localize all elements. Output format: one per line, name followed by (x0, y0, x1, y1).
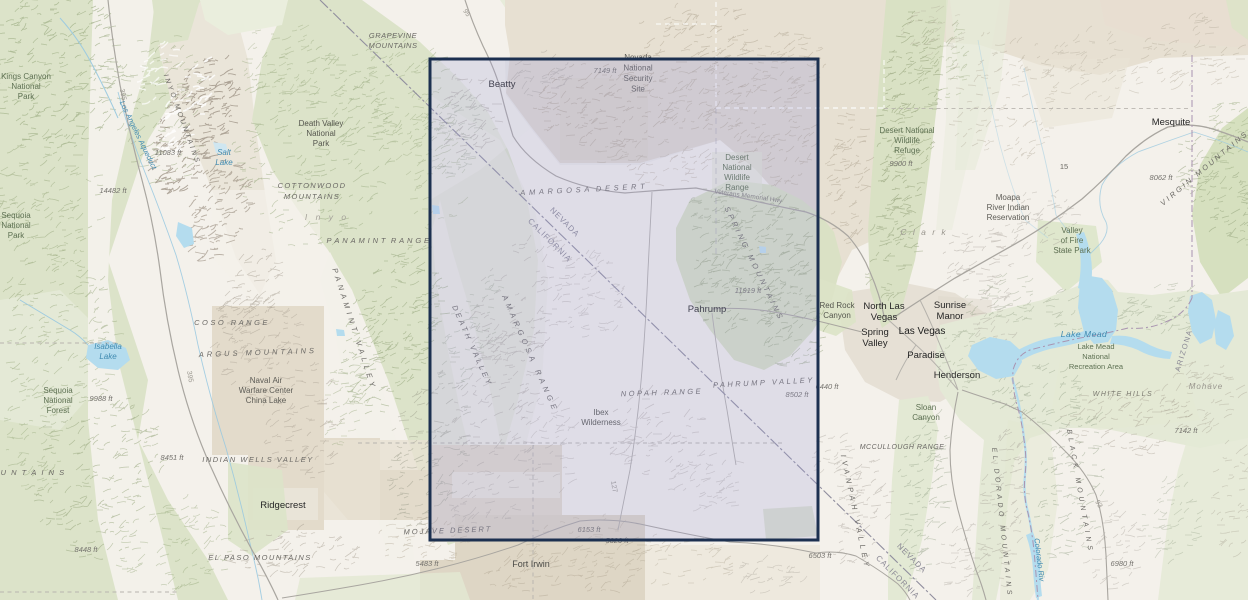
svg-text:Las Vegas: Las Vegas (899, 326, 946, 337)
svg-text:Park: Park (8, 231, 25, 240)
svg-text:Spring: Spring (861, 327, 888, 338)
svg-text:Henderson: Henderson (934, 370, 980, 381)
svg-text:Sequoia: Sequoia (1, 211, 31, 220)
svg-text:Vegas: Vegas (871, 312, 898, 323)
svg-text:P A N A M I N T R A N G E: P A N A M I N T R A N G E (327, 236, 431, 245)
svg-text:MOUNTAINS: MOUNTAINS (284, 192, 340, 201)
svg-text:Mesquite: Mesquite (1152, 117, 1191, 128)
svg-text:Refuge: Refuge (894, 146, 920, 155)
svg-text:WHITE HILLS: WHITE HILLS (1093, 391, 1153, 398)
svg-text:Salt: Salt (217, 148, 232, 157)
svg-text:9900 ft: 9900 ft (890, 159, 914, 168)
svg-text:of Fire: of Fire (1061, 236, 1084, 245)
svg-text:C l a r k: C l a r k (900, 227, 947, 237)
svg-text:Canyon: Canyon (823, 311, 851, 320)
svg-text:INDIAN WELLS VALLEY: INDIAN WELLS VALLEY (202, 455, 313, 464)
svg-text:Kings Canyon: Kings Canyon (1, 72, 51, 81)
svg-text:China Lake: China Lake (246, 396, 287, 405)
svg-text:National: National (1082, 352, 1110, 361)
svg-text:Mohave: Mohave (1189, 382, 1223, 391)
svg-text:National: National (306, 129, 336, 138)
svg-text:Red Rock: Red Rock (819, 301, 855, 310)
svg-text:Park: Park (18, 92, 35, 101)
svg-text:Desert National: Desert National (879, 126, 934, 135)
svg-text:Lake Mead: Lake Mead (1061, 329, 1108, 339)
svg-text:8451 ft: 8451 ft (161, 453, 185, 462)
svg-text:Wildlife: Wildlife (894, 136, 920, 145)
svg-text:Sunrise: Sunrise (934, 300, 966, 311)
svg-text:COSO RANGE: COSO RANGE (194, 318, 270, 327)
svg-text:5483 ft: 5483 ft (416, 559, 440, 568)
svg-text:Moapa: Moapa (996, 193, 1021, 202)
svg-text:Recreation Area: Recreation Area (1069, 362, 1124, 371)
svg-text:Forest: Forest (47, 406, 70, 415)
svg-text:8062 ft: 8062 ft (1150, 173, 1174, 182)
svg-text:Reservation: Reservation (987, 213, 1030, 222)
svg-text:6503 ft: 6503 ft (809, 551, 833, 560)
svg-text:Lake: Lake (215, 158, 233, 167)
svg-text:State Park: State Park (1053, 246, 1091, 255)
svg-text:8448 ft: 8448 ft (75, 545, 99, 554)
svg-text:Paradise: Paradise (907, 350, 945, 361)
svg-text:National: National (11, 82, 41, 91)
svg-text:GRAPEVINE: GRAPEVINE (369, 31, 418, 40)
svg-text:Lake: Lake (99, 352, 117, 361)
svg-text:EL PASO MOUNTAINS: EL PASO MOUNTAINS (208, 553, 312, 562)
svg-text:Sequoia: Sequoia (43, 386, 73, 395)
svg-text:Sloan: Sloan (916, 403, 936, 412)
svg-text:Manor: Manor (937, 311, 964, 322)
svg-text:Park: Park (313, 139, 330, 148)
svg-text:Canyon: Canyon (912, 413, 940, 422)
svg-text:MOUNTAINS: MOUNTAINS (369, 41, 418, 50)
svg-text:Valley: Valley (1061, 226, 1082, 235)
svg-text:Death Valley: Death Valley (299, 119, 344, 128)
svg-text:9988 ft: 9988 ft (90, 394, 114, 403)
svg-text:14482 ft: 14482 ft (99, 186, 127, 195)
svg-text:Fort Irwin: Fort Irwin (512, 559, 550, 569)
svg-text:M O U N T A I N S: M O U N T A I N S (0, 468, 66, 477)
svg-text:North Las: North Las (863, 301, 904, 312)
svg-text:National: National (43, 396, 73, 405)
svg-text:River Indian: River Indian (987, 203, 1030, 212)
svg-text:National: National (1, 221, 31, 230)
svg-text:6980 ft: 6980 ft (1111, 559, 1135, 568)
svg-text:I n y o: I n y o (305, 212, 349, 222)
svg-text:15: 15 (1060, 162, 1068, 171)
svg-text:Ridgecrest: Ridgecrest (260, 500, 306, 511)
svg-text:Lake Mead: Lake Mead (1077, 342, 1114, 351)
svg-text:7142 ft: 7142 ft (1175, 426, 1199, 435)
svg-text:Isabella: Isabella (94, 342, 122, 351)
svg-text:Warfare Center: Warfare Center (239, 386, 294, 395)
svg-text:MCCULLOUGH RANGE: MCCULLOUGH RANGE (860, 444, 945, 451)
svg-text:COTTONWOOD: COTTONWOOD (278, 181, 347, 190)
svg-text:11083 ft: 11083 ft (155, 148, 182, 157)
svg-text:Valley: Valley (862, 338, 887, 349)
svg-text:Naval Air: Naval Air (250, 376, 283, 385)
